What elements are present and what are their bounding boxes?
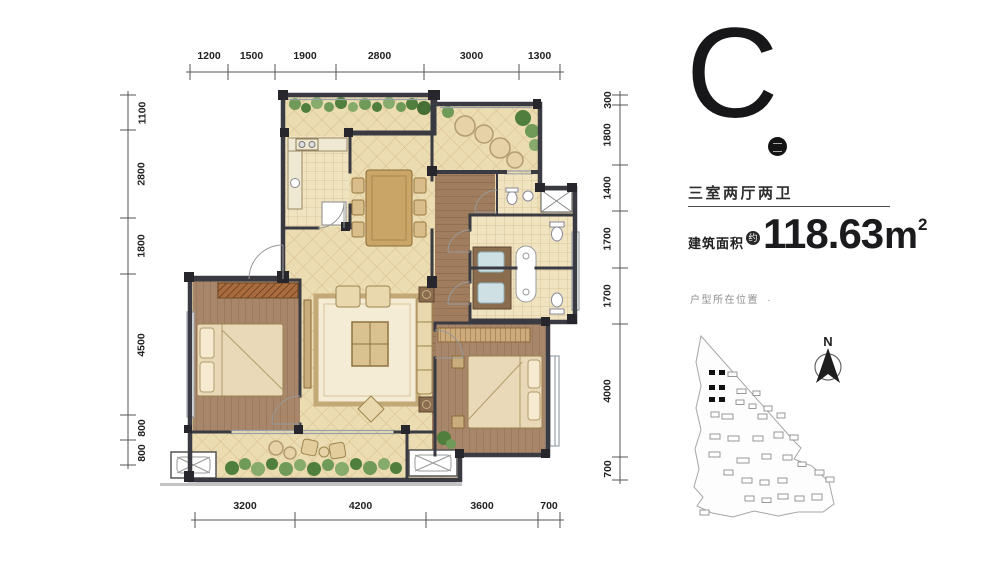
- dim-label: 700: [538, 500, 560, 513]
- dim-label: 1500: [228, 50, 275, 63]
- dim-label: 1900: [275, 50, 335, 63]
- stone: [284, 447, 296, 459]
- dim-label: 800: [136, 444, 148, 462]
- dim-label: 4200: [295, 500, 426, 513]
- dim-label: 1700: [602, 227, 614, 250]
- toilet: [552, 293, 563, 307]
- sink: [478, 283, 504, 303]
- location-note: 户型所在位置 ·: [690, 291, 772, 306]
- dim-label: 3600: [426, 500, 538, 513]
- balcony-table: [319, 447, 329, 457]
- stone: [475, 125, 493, 143]
- area-exponent: 2: [918, 215, 927, 235]
- wardrobe: [218, 283, 298, 298]
- stone: [490, 138, 510, 158]
- toilet: [552, 227, 563, 241]
- dim-label: 1800: [602, 123, 614, 146]
- dim-label: 1200: [190, 50, 228, 63]
- balcony-chair: [301, 439, 319, 457]
- dim-label: 1700: [602, 284, 614, 307]
- armchair: [366, 286, 390, 307]
- balcony-chair: [329, 442, 346, 459]
- dimension-column-left: 1100 2800 1800 4500 800 800: [133, 95, 151, 465]
- dim-label: 4500: [136, 333, 148, 356]
- pillow: [528, 360, 540, 388]
- floorplan-page: N 1200 1500 1900 2800 3000 1300 3200 420…: [0, 0, 1000, 570]
- area-label: 建筑面积: [688, 233, 744, 252]
- dim-label: 300: [602, 91, 614, 109]
- plant: [446, 439, 456, 449]
- north-arrow-icon: N: [815, 334, 841, 383]
- dim-label: 800: [136, 419, 148, 437]
- area-unit: m: [884, 215, 918, 258]
- dimension-row-top: 1200 1500 1900 2800 3000 1300: [190, 50, 560, 63]
- area-row: 建筑面积 约 118.63 m 2: [688, 210, 927, 258]
- unit-letter: C: [686, 10, 776, 138]
- tub: [516, 246, 536, 302]
- toilet: [507, 192, 517, 205]
- side-table: [419, 287, 434, 302]
- dim-label: 1800: [136, 234, 148, 257]
- pillow: [528, 392, 540, 420]
- dim-label: 1300: [519, 50, 560, 63]
- dim-label: 700: [602, 460, 614, 478]
- compass-n-label: N: [823, 334, 832, 349]
- basin: [523, 191, 533, 201]
- dim-label: 1400: [602, 176, 614, 199]
- fridge: [322, 202, 346, 225]
- stone: [269, 441, 283, 455]
- tv-console: [304, 300, 311, 388]
- dim-label: 2800: [136, 162, 148, 185]
- dim-label: 2800: [335, 50, 424, 63]
- location-note-text: 户型所在位置: [690, 295, 759, 306]
- area-value: 118.63: [763, 210, 883, 258]
- dimension-row-bottom: 3200 4200 3600 700: [195, 500, 560, 513]
- nightstand: [452, 416, 464, 428]
- dim-label: 3200: [195, 500, 295, 513]
- side-table: [419, 397, 434, 412]
- dim-label: 3000: [424, 50, 519, 63]
- dim-label: 4000: [602, 379, 614, 402]
- site-map: N: [694, 334, 841, 517]
- stone: [455, 116, 475, 136]
- stone: [507, 152, 523, 168]
- unit-dot-icon: [768, 137, 787, 156]
- dining-room: [352, 170, 426, 246]
- dim-label: 1100: [136, 101, 148, 124]
- panel-divider: [688, 206, 890, 207]
- living-room: [304, 286, 434, 422]
- unit-type-label: 三室两厅两卫: [688, 182, 793, 203]
- approx-badge: 约: [746, 231, 760, 245]
- dimension-column-right: 300 1800 1400 1700 1700 4000 700: [599, 95, 617, 480]
- location-marker: ·: [767, 295, 772, 306]
- pillow: [200, 328, 214, 358]
- pillow: [200, 362, 214, 392]
- armchair: [336, 286, 360, 307]
